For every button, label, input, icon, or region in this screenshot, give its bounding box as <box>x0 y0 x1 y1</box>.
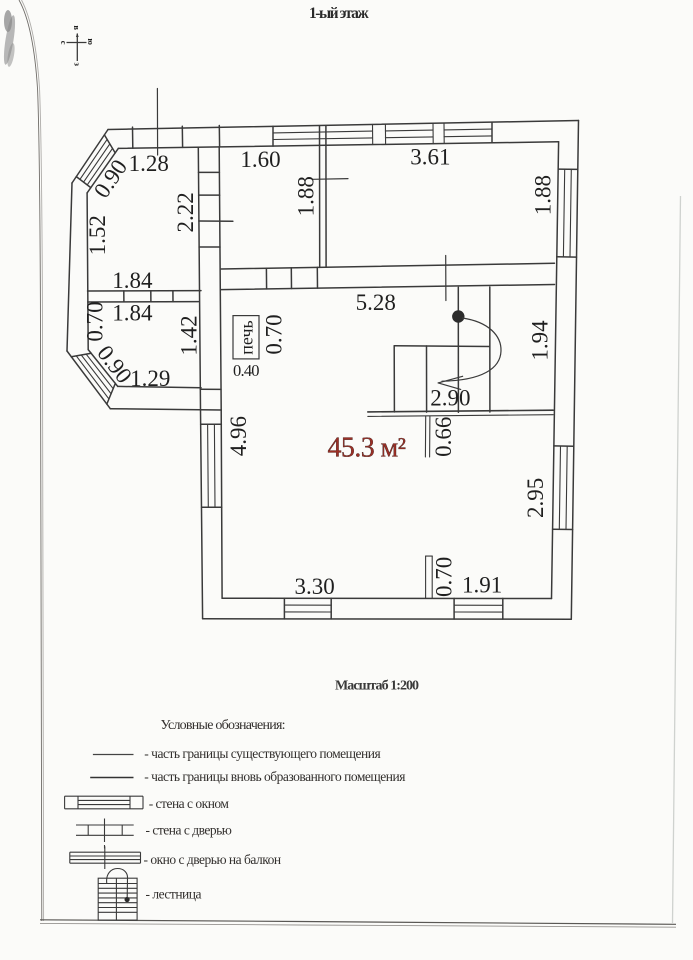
svg-text:0.90: 0.90 <box>89 155 132 202</box>
svg-text:- окно с дверью на балкон: - окно с дверью на балкон <box>144 852 281 867</box>
svg-text:- стена с дверью: - стена с дверью <box>146 823 232 838</box>
svg-text:5.28: 5.28 <box>356 290 396 315</box>
svg-text:1-ый этаж: 1-ый этаж <box>309 5 369 22</box>
svg-text:- часть границы вновь образова: - часть границы вновь образованного поме… <box>144 769 405 784</box>
svg-text:3.61: 3.61 <box>410 145 450 170</box>
svg-text:0.70: 0.70 <box>83 301 108 341</box>
svg-text:2.95: 2.95 <box>523 478 548 518</box>
svg-text:1.29: 1.29 <box>130 366 170 391</box>
svg-text:- стена с окном: - стена с окном <box>149 796 230 811</box>
svg-text:2.22: 2.22 <box>173 192 198 232</box>
svg-text:в: в <box>72 25 82 30</box>
svg-text:0.66: 0.66 <box>431 417 456 457</box>
svg-text:- лестница: - лестница <box>146 887 202 902</box>
svg-text:3.30: 3.30 <box>294 574 334 599</box>
svg-text:4.96: 4.96 <box>226 416 251 456</box>
svg-text:1.88: 1.88 <box>530 175 555 215</box>
svg-text:печь: печь <box>237 320 257 354</box>
svg-text:Масштаб 1:200: Масштаб 1:200 <box>335 679 419 694</box>
svg-text:0.40: 0.40 <box>233 361 259 380</box>
svg-text:- часть границы существующего: - часть границы существующего помещения <box>144 746 380 761</box>
svg-text:0.70: 0.70 <box>262 314 287 354</box>
svg-text:45.3 м²: 45.3 м² <box>328 432 406 463</box>
svg-text:1.94: 1.94 <box>528 320 553 361</box>
svg-text:1.42: 1.42 <box>176 315 201 355</box>
svg-text:1.84: 1.84 <box>112 268 153 293</box>
svg-text:1.91: 1.91 <box>462 573 502 598</box>
svg-text:з: з <box>73 62 83 66</box>
svg-text:Условные обозначения:: Условные обозначения: <box>161 718 285 733</box>
svg-text:1.52: 1.52 <box>85 215 110 255</box>
svg-text:с: с <box>59 41 69 45</box>
svg-text:1.84: 1.84 <box>112 300 153 325</box>
svg-text:1.28: 1.28 <box>129 151 169 176</box>
svg-text:1.88: 1.88 <box>293 176 318 216</box>
svg-text:2.90: 2.90 <box>430 385 470 410</box>
svg-text:0.70: 0.70 <box>432 557 457 597</box>
svg-text:1.60: 1.60 <box>240 147 280 172</box>
svg-text:ю: ю <box>86 38 96 45</box>
